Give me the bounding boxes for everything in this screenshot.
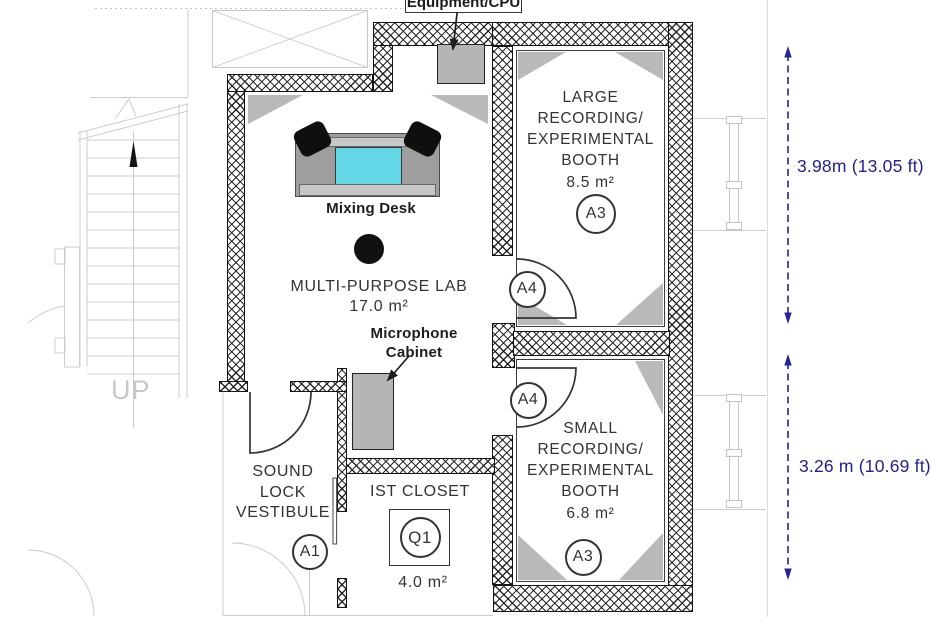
closet-label: IST CLOSET [370,481,470,502]
wall-vestibule-jamb-right [290,381,347,392]
wall-bottom [493,585,693,612]
wall-lab-bottom [345,458,495,474]
wall-bottom-stub [337,578,347,608]
mixing-desk-bottom-strip [299,184,436,196]
door-tag-lower: A4 [510,382,547,419]
wall-vestibule-jamb-left [219,381,248,392]
large-booth-tag: A3 [576,194,616,234]
closet-tag: Q1 [400,517,441,558]
floor-plan: Equipment/CPU LARGE RECORDING/ EXPERIMEN… [0,0,931,617]
small-booth-area: 6.8 m² [516,503,665,524]
mixing-desk-label: Mixing Desk [326,200,416,219]
wall-lab-left [227,74,245,392]
microphone-cabinet-label: Microphone Cabinet [371,325,458,362]
equipment-cpu-box [437,44,485,84]
door-tag-upper: A4 [509,271,546,308]
small-booth-label: SMALL RECORDING/ EXPERIMENTAL BOOTH 6.8 … [516,418,665,524]
right-exterior-windows [693,0,768,617]
wall-between-doors [492,323,515,368]
wall-booths-top [492,22,693,46]
stairs-up-label: UP [111,375,151,406]
dimension-arrows [784,46,791,580]
dimension-small-booth: 3.26 m (10.69 ft) [799,456,931,477]
equipment-label-box: Equipment/CPU [405,0,522,13]
dimension-large-booth: 3.98m (13.05 ft) [797,156,924,177]
mixing-desk-screen [335,147,402,185]
vestibule-label: SOUND LOCK VESTIBULE [236,462,330,524]
lab-label: MULTI-PURPOSE LAB 17.0 m² [291,277,468,317]
stairs-up-arrow [130,141,138,167]
lab-area: 17.0 m² [291,297,468,317]
wall-right-exterior [668,22,693,612]
small-booth-tag: A3 [565,539,602,576]
stool [354,234,384,264]
equipment-label: Equipment/CPU [407,0,520,11]
large-booth-area: 8.5 m² [516,172,665,193]
wall-lab-large-booth-divider [492,46,513,256]
microphone-cabinet-box [352,373,394,450]
vestibule-door [250,392,311,453]
wall-lab-top-left [227,74,373,92]
wall-small-booth-left [492,435,513,585]
shaft-crossed-box [213,11,368,68]
wall-inter-booth [513,331,670,356]
large-booth-label: LARGE RECORDING/ EXPERIMENTAL BOOTH 8.5 … [516,87,665,193]
closet-area: 4.0 m² [398,572,448,593]
wall-lab-top-right [373,22,493,46]
vestibule-tag: A1 [292,534,328,570]
